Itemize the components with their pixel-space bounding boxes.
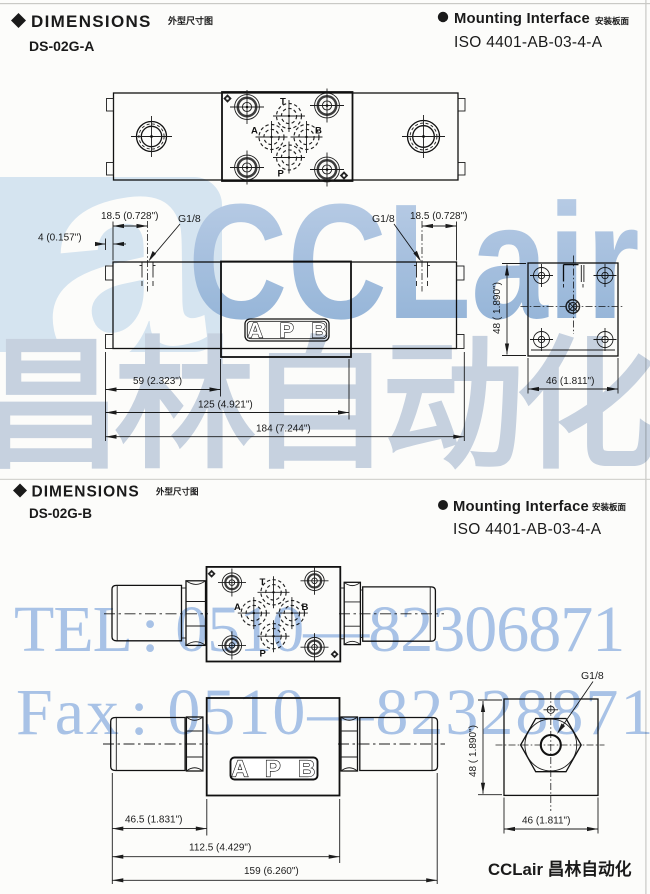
- svg-text:安装板面: 安装板面: [592, 502, 627, 512]
- svg-text:Mounting Interface: Mounting Interface: [453, 499, 589, 515]
- svg-text:DIMENSIONS: DIMENSIONS: [31, 12, 152, 31]
- svg-text:T: T: [260, 577, 266, 588]
- svg-text:DS-02G-A: DS-02G-A: [29, 38, 94, 54]
- svg-text:安装板面: 安装板面: [595, 16, 630, 26]
- svg-text:DIMENSIONS: DIMENSIONS: [32, 484, 140, 501]
- svg-text:159 (6.260"): 159 (6.260"): [244, 866, 299, 877]
- svg-text:B: B: [315, 126, 322, 137]
- svg-text:DS-02G-B: DS-02G-B: [29, 506, 92, 521]
- svg-text:ISO 4401-AB-03-4-A: ISO 4401-AB-03-4-A: [454, 34, 603, 51]
- svg-text:ISO 4401-AB-03-4-A: ISO 4401-AB-03-4-A: [453, 521, 602, 538]
- svg-text:B: B: [298, 756, 315, 782]
- svg-text:Fax:0510—82328871: Fax:0510—82328871: [16, 676, 650, 749]
- svg-text:46 (1.811"): 46 (1.811"): [522, 816, 570, 827]
- svg-text:112.5 (4.429"): 112.5 (4.429"): [189, 843, 251, 854]
- svg-text:A: A: [251, 126, 258, 137]
- svg-text:Mounting Interface: Mounting Interface: [454, 11, 590, 27]
- svg-text:外型尺寸图: 外型尺寸图: [155, 487, 199, 497]
- svg-text:46.5 (1.831"): 46.5 (1.831"): [125, 815, 182, 826]
- svg-text:外型尺寸图: 外型尺寸图: [167, 15, 213, 26]
- svg-text:T: T: [280, 97, 286, 108]
- svg-text:TEL:0510—82306871: TEL:0510—82306871: [14, 593, 624, 666]
- svg-text:A: A: [232, 756, 249, 782]
- svg-text:CCLair 昌林自动化: CCLair 昌林自动化: [488, 859, 632, 879]
- svg-text:昌林自动化: 昌林自动化: [0, 327, 650, 486]
- svg-text:P: P: [265, 756, 281, 782]
